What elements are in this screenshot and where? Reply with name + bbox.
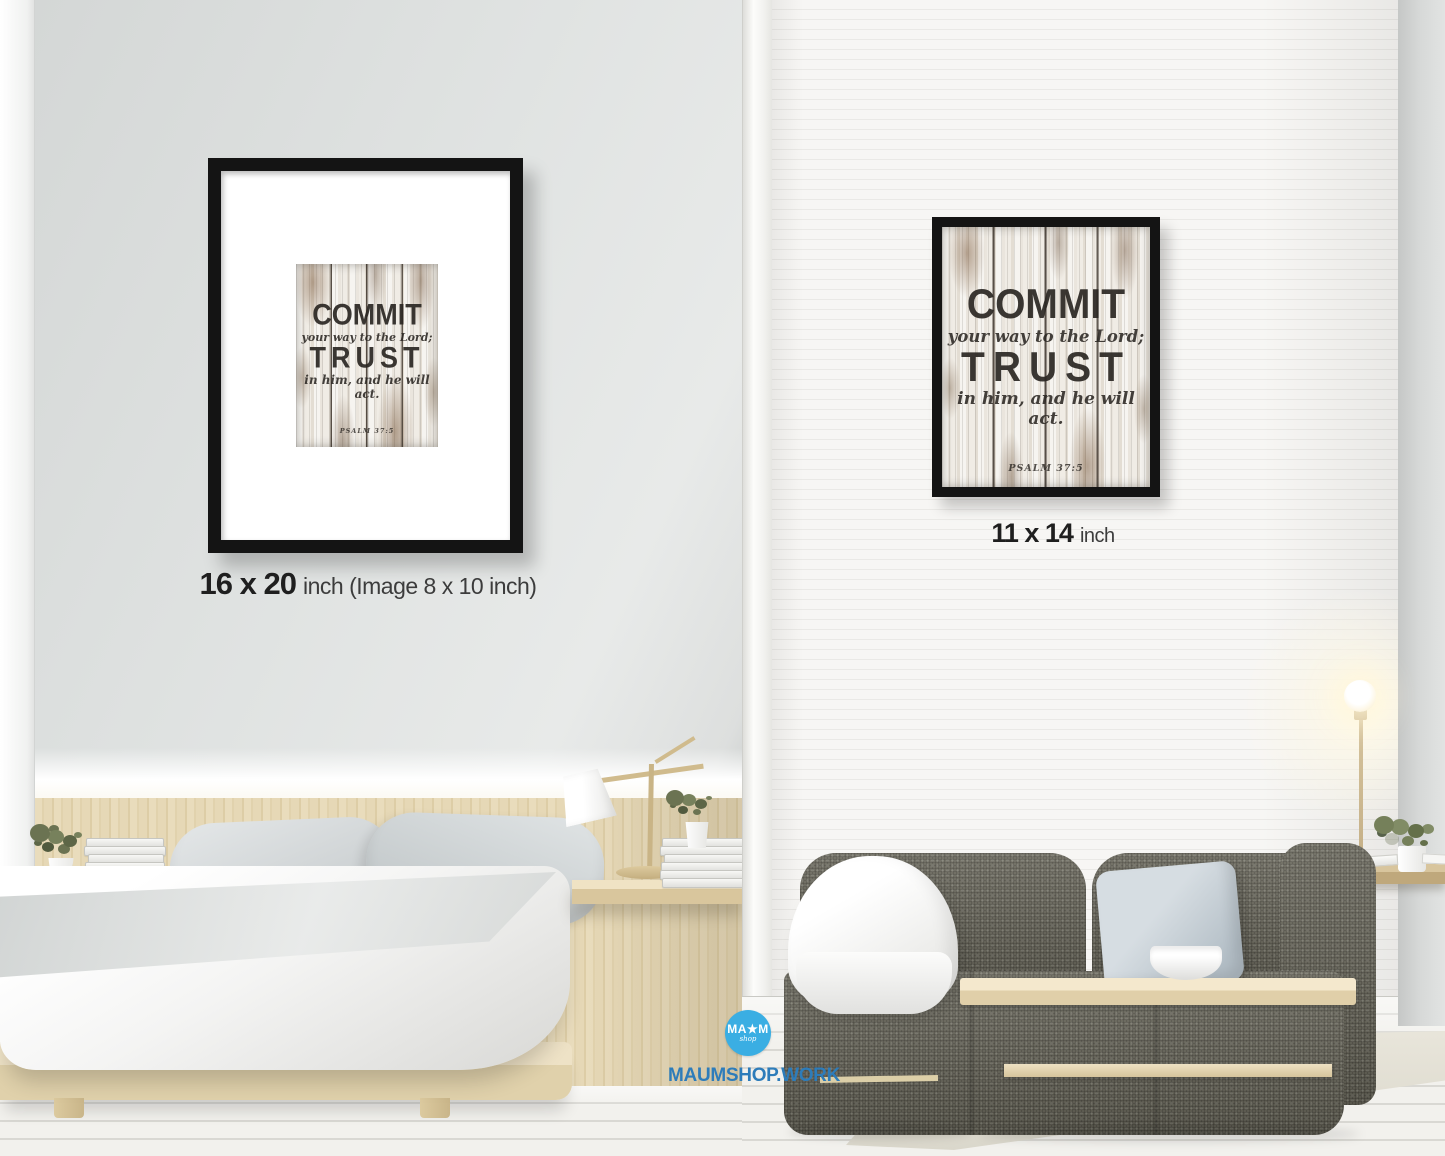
frame-mat: COMMIT your way to the Lord; TRUST in hi… [221,171,510,540]
coffee-table-shadow [980,1126,1360,1142]
art-word-commit: COMMIT [942,283,1150,325]
size-label-16x20-suffix: inch (Image 8 x 10 inch) [303,573,536,599]
art-word-trust: TRUST [942,346,1150,388]
size-label-11x14-bold: 11 x 14 [991,518,1073,548]
art-phrase-2: in him, and he will act. [296,373,438,401]
art-word-commit: COMMIT [296,301,438,330]
bed-leg-right [420,1098,450,1118]
chair-shadow [788,1124,972,1140]
side-table-plant [1374,816,1394,834]
framed-print-11x14: COMMIT your way to the Lord; TRUST in hi… [932,217,1160,497]
brand-logo-script: shop [740,1035,757,1043]
brand-logo-text: MA★M [727,1023,768,1035]
side-table-paper [1422,853,1445,864]
art-phrase-2: in him, and he will act. [942,389,1150,429]
plant-right [666,790,684,806]
vase-right [684,822,710,848]
size-label-16x20: 16 x 20inch (Image 8 x 10 inch) [188,566,548,602]
framed-print-16x20: COMMIT your way to the Lord; TRUST in hi… [208,158,523,553]
art-phrase-1: your way to the Lord; [942,327,1150,346]
bed-leg-left [54,1098,84,1118]
chair-seat [796,952,952,1014]
product-photo: COMMIT your way to the Lord; TRUST in hi… [0,0,1445,1156]
brand-logo-circle: MA★M shop [725,1010,771,1056]
art-word-trust: TRUST [296,344,438,373]
plant-left [30,824,50,842]
art-print-right: COMMIT your way to the Lord; TRUST in hi… [942,227,1150,487]
website-text: MAUMSHOP.WORK [668,1065,828,1087]
floor-lamp-bulb [1344,680,1376,712]
size-label-11x14: 11 x 14inch [953,518,1153,549]
size-label-16x20-bold: 16 x 20 [200,566,296,601]
coffee-table-shelf [1004,1064,1332,1077]
wall-divider-pillar [742,0,773,1008]
brand-logo: MA★M shop MAUMSHOP.WORK [668,1010,828,1087]
size-label-11x14-suffix: inch [1080,525,1115,547]
coffee-table-top [960,978,1356,1005]
art-reference: PSALM 37:5 [296,427,438,435]
art-print-left: COMMIT your way to the Lord; TRUST in hi… [296,264,438,447]
art-reference: PSALM 37:5 [942,463,1150,474]
